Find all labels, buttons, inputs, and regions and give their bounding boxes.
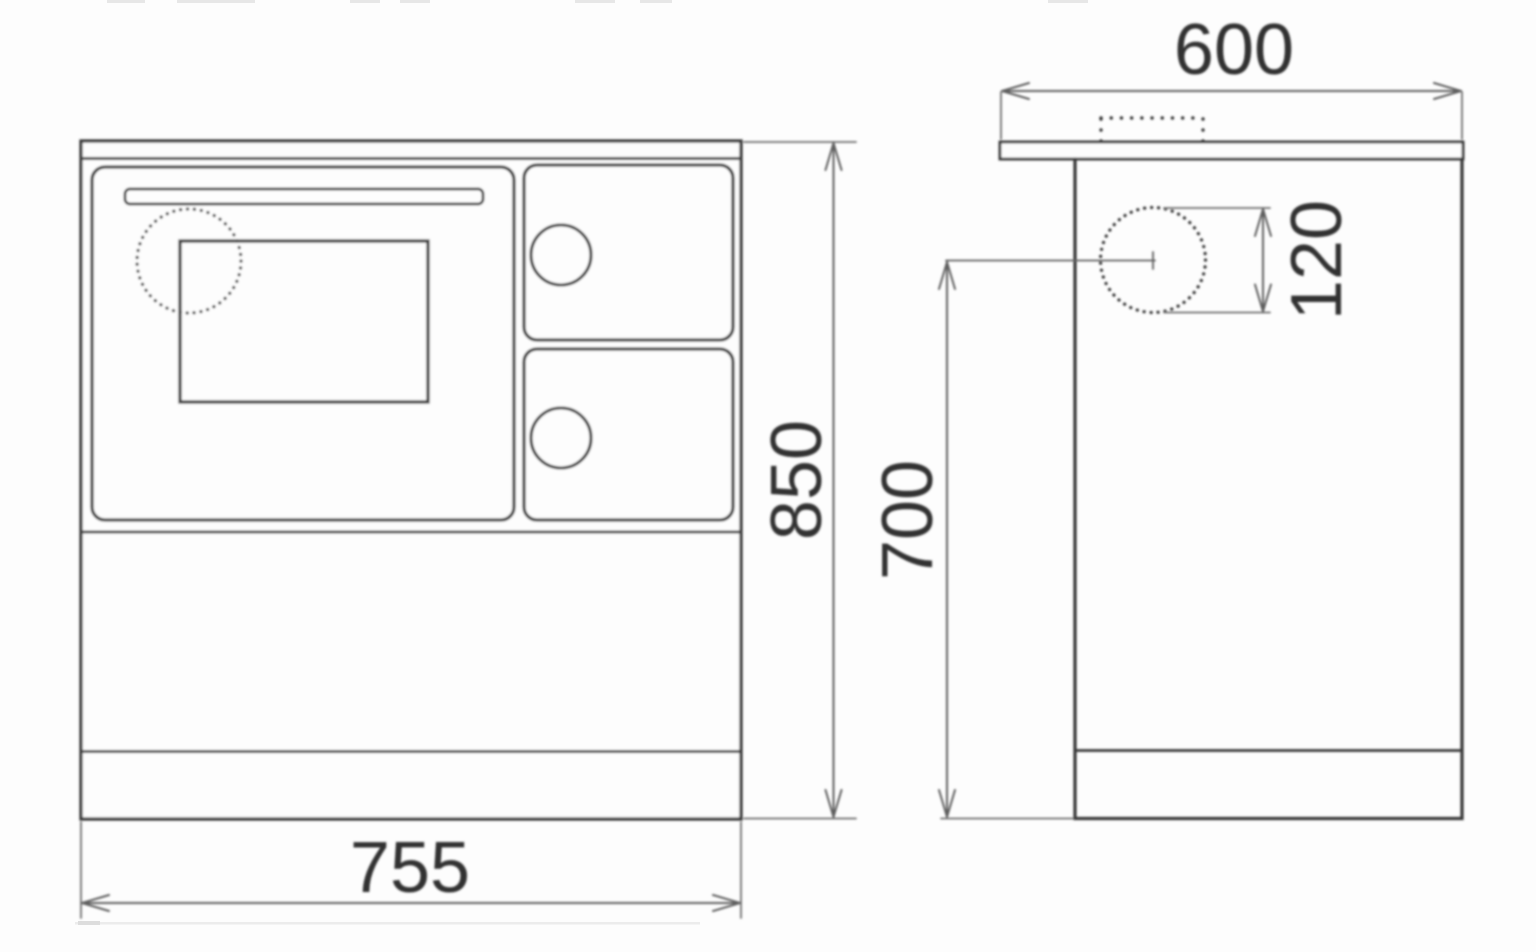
svg-text:755: 755 (350, 828, 470, 908)
svg-text:120: 120 (1277, 200, 1357, 320)
svg-text:600: 600 (1174, 10, 1294, 90)
svg-text:700: 700 (868, 460, 948, 580)
svg-text:850: 850 (757, 420, 837, 540)
